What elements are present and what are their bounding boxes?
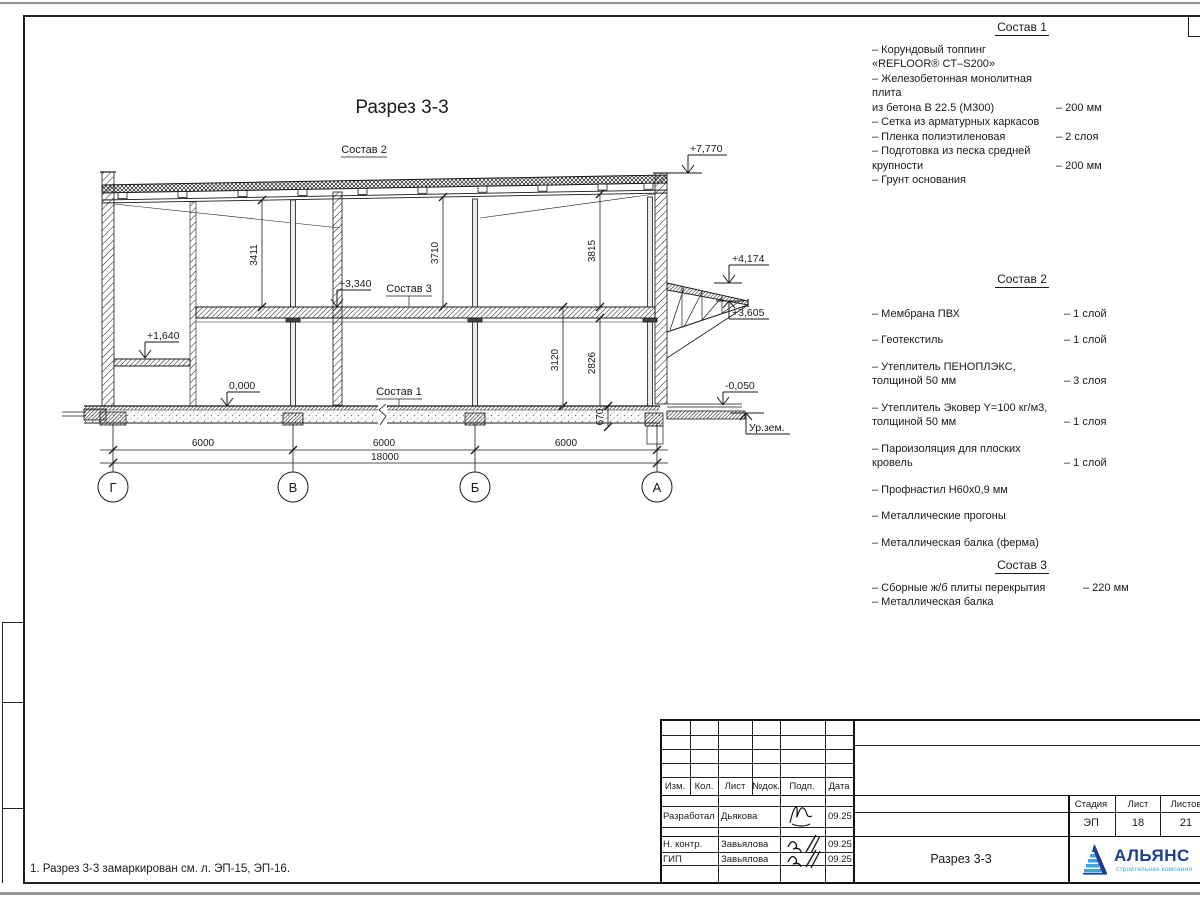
callout-sostav2: Состав 2: [341, 144, 387, 156]
tb-sheet-label: Лист: [1128, 799, 1149, 810]
spec-item: – Пленка полиэтиленовая– 2 слоя: [872, 130, 1172, 145]
company-logo-subtitle: строительная компания: [1116, 866, 1192, 873]
floor2-slab: [196, 307, 655, 322]
tb-col-list: Лист: [725, 781, 746, 792]
axis-a: А: [653, 480, 662, 495]
tb-name-ncontr: Завьялова: [721, 839, 768, 850]
spec-item: – Грунт основания: [872, 173, 1172, 188]
level-zero: 0,000: [221, 380, 260, 406]
callout-sostav1: Состав 1: [376, 386, 422, 398]
svg-text:Ур.зем.: Ур.зем.: [749, 422, 785, 434]
svg-text:+1,640: +1,640: [147, 330, 180, 342]
tb-role-gip: ГИП: [663, 854, 682, 865]
spec-item: – Металлические прогоны: [872, 509, 1172, 524]
callout-sostav3: Состав 3: [386, 283, 432, 295]
spec-sostav-3: Состав 3 – Сборные ж/б плиты перекрытия–…: [872, 558, 1172, 610]
spec-item: – Пароизоляция для плоских кровель– 1 сл…: [872, 442, 1172, 471]
spec-item: – Металлическая балка: [872, 595, 1172, 610]
svg-text:6000: 6000: [555, 438, 578, 449]
tb-name-gip: Завьялова: [721, 854, 768, 865]
spec-item: – Утеплитель Эковер Y=100 кг/м3, толщино…: [872, 401, 1172, 430]
tb-col-kol: Кол.: [695, 781, 714, 792]
tb-date-gip: 09.25: [828, 854, 852, 865]
spec-item: – Профнастил Н60х0,9 мм: [872, 483, 1172, 498]
spec-item: – Металлическая балка (ферма): [872, 536, 1172, 551]
spec-item: – Геотекстиль– 1 слой: [872, 333, 1172, 348]
level-apron: -0,050: [717, 380, 758, 405]
tb-col-podp: Подп.: [789, 781, 814, 792]
tb-col-izm: Изм.: [665, 781, 685, 792]
horizontal-dims: 6000 6000 6000 18000 Г В Б А: [98, 424, 672, 502]
title-block: Изм. Кол. Лист №док. Подп. Дата Разработ…: [660, 719, 1200, 884]
tb-stage-label: Стадия: [1075, 799, 1107, 810]
axis-v: В: [289, 480, 298, 495]
svg-text:3710: 3710: [430, 241, 441, 264]
signature-developer: [784, 799, 824, 827]
walls: [100, 172, 669, 406]
spec-sostav-2: Состав 2 – Мембрана ПВХ– 1 слой – Геотек…: [872, 272, 1172, 562]
mezzanine-slab: [114, 359, 190, 366]
svg-text:2826: 2826: [587, 351, 598, 374]
level-canopy-top: +4,174: [714, 253, 769, 283]
svg-text:6000: 6000: [373, 438, 396, 449]
roof: [102, 175, 667, 228]
tb-col-ndok: №док.: [752, 781, 780, 792]
spec2-title: Состав 2: [872, 272, 1172, 287]
svg-text:3815: 3815: [587, 239, 598, 262]
company-logo-icon: [1081, 843, 1109, 877]
svg-text:+3,340: +3,340: [339, 278, 372, 290]
axis-g: Г: [109, 480, 116, 495]
spec-item: – Мембрана ПВХ– 1 слой: [872, 307, 1172, 322]
svg-text:+3,605: +3,605: [732, 307, 765, 319]
tb-stage-value: ЭП: [1083, 817, 1099, 829]
tb-role-developer: Разработал: [663, 811, 715, 822]
canopy-truss: [667, 283, 748, 358]
tb-role-ncontr: Н. контр.: [663, 839, 702, 850]
level-roof: +7,770: [667, 143, 727, 173]
spec-item: – Корундовый топпинг «REFLOOR® CT–S200»: [872, 43, 1172, 72]
svg-text:+4,174: +4,174: [732, 253, 765, 265]
sheet-note: 1. Разрез 3-3 замаркирован см. л. ЭП-15,…: [30, 863, 290, 875]
ground-slab: [62, 404, 745, 425]
tb-sheets-label: Листов: [1171, 799, 1200, 810]
svg-text:670: 670: [595, 408, 606, 425]
company-logo-name: АЛЬЯНС: [1114, 846, 1190, 866]
tb-sheet-value: 18: [1132, 817, 1144, 829]
spec3-title: Состав 3: [872, 558, 1172, 573]
axis-b: Б: [471, 480, 480, 495]
tb-date-ncontr: 09.25: [828, 839, 852, 850]
level-mezzanine: +1,640: [139, 330, 180, 358]
tb-col-data: Дата: [828, 781, 849, 792]
svg-text:-0,050: -0,050: [725, 380, 755, 392]
spec-item: – Сборные ж/б плиты перекрытия– 220 мм: [872, 581, 1172, 596]
svg-text:3411: 3411: [249, 244, 260, 266]
signature-gip: [784, 848, 826, 870]
spec-item: – Подготовка из песка средней крупности–…: [872, 144, 1172, 173]
svg-text:6000: 6000: [192, 438, 215, 449]
spec-item: – Железобетонная монолитная плита из бет…: [872, 72, 1172, 116]
tb-doc-title: Разрез 3-3: [930, 852, 991, 866]
svg-text:18000: 18000: [371, 452, 399, 463]
tb-name-developer: Дьякова: [721, 811, 757, 822]
drawing-title: Разрез 3-3: [355, 97, 448, 118]
spec-item: – Сетка из арматурных каркасов: [872, 115, 1172, 130]
svg-text:+7,770: +7,770: [690, 143, 723, 155]
axis-bubbles: [98, 472, 672, 502]
svg-text:3120: 3120: [550, 348, 561, 371]
spec-sostav-1: Состав 1 – Корундовый топпинг «REFLOOR® …: [872, 20, 1172, 188]
spec1-title: Состав 1: [872, 20, 1172, 35]
tb-date-developer: 09.25: [828, 811, 852, 822]
tb-sheets-value: 21: [1180, 817, 1192, 829]
svg-text:0,000: 0,000: [229, 380, 255, 392]
spec-item: – Утеплитель ПЕНОПЛЭКС, толщиной 50 мм– …: [872, 360, 1172, 389]
